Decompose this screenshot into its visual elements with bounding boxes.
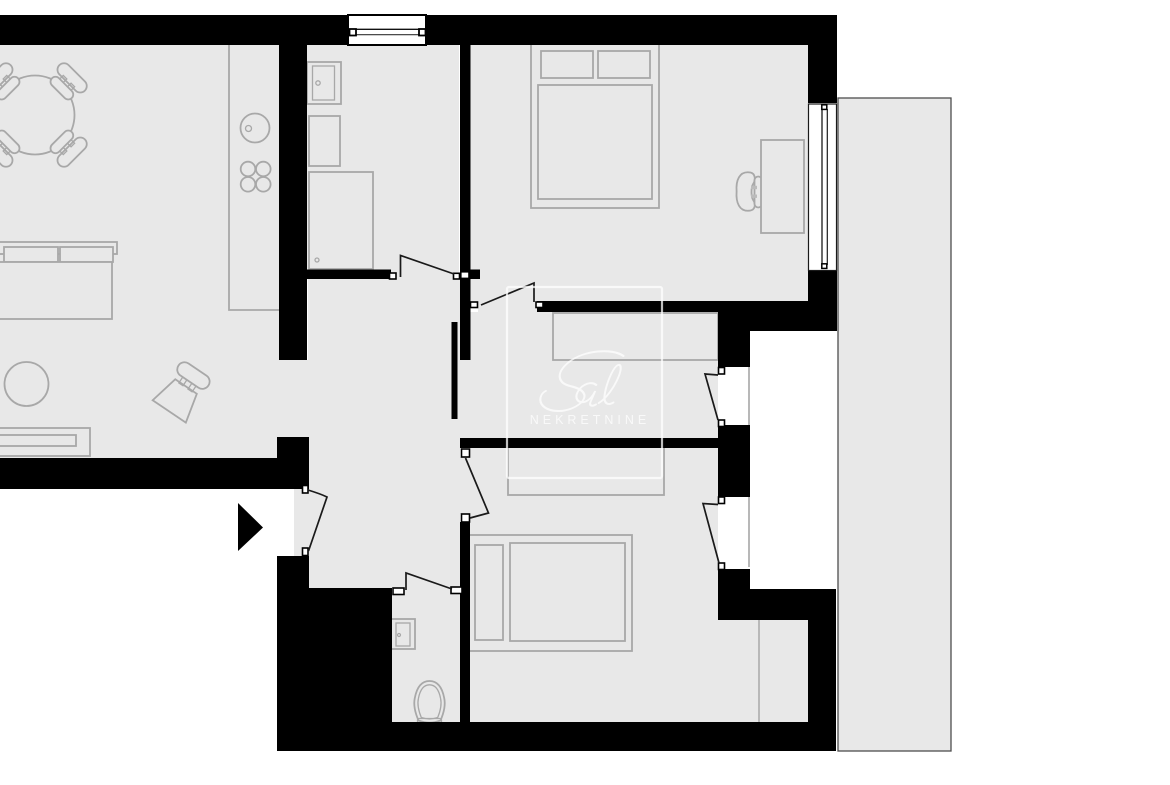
svg-text:NEKRETNINE: NEKRETNINE xyxy=(530,413,651,427)
